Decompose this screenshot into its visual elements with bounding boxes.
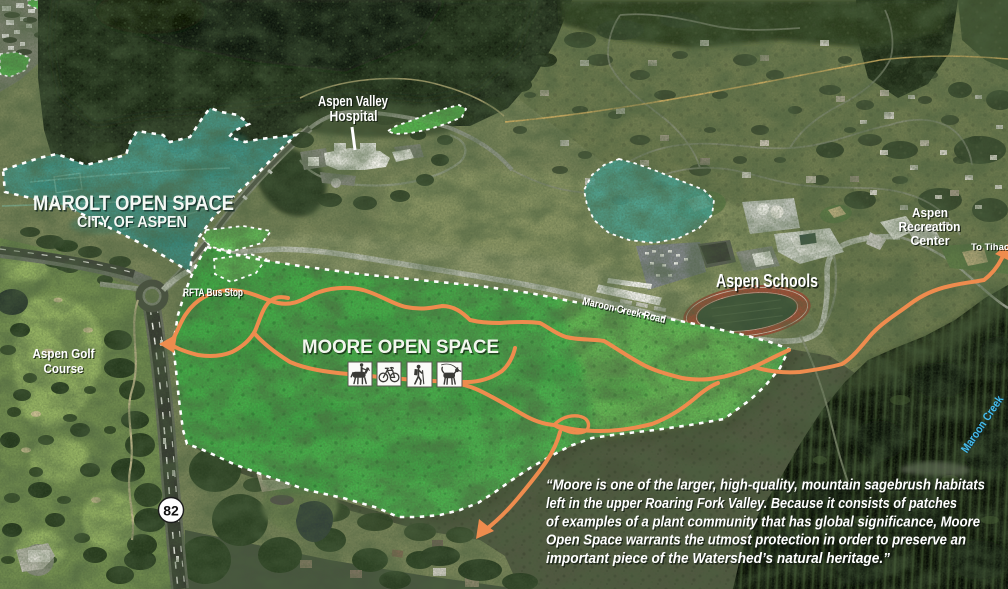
svg-text:MOORE OPEN SPACE: MOORE OPEN SPACE: [302, 336, 499, 358]
svg-text:Aspen: Aspen: [912, 205, 948, 220]
svg-text:Aspen Schools: Aspen Schools: [716, 271, 818, 291]
svg-text:Aspen Valley: Aspen Valley: [318, 94, 388, 110]
svg-text:of examples of a plant communi: of examples of a plant community that ha…: [546, 513, 980, 530]
svg-text:Aspen Golf: Aspen Golf: [33, 346, 96, 361]
svg-text:RFTA Bus Stop: RFTA Bus Stop: [183, 287, 243, 299]
svg-text:MAROLT OPEN SPACE: MAROLT OPEN SPACE: [33, 192, 234, 215]
svg-text:CITY OF ASPEN: CITY OF ASPEN: [77, 214, 187, 231]
svg-text:To Tihack: To Tihack: [971, 242, 1008, 253]
svg-text:important piece of the Watersh: important piece of the Watershed’s natur…: [546, 550, 890, 567]
svg-text:82: 82: [163, 503, 179, 519]
svg-text:Open Space warrants the utmost: Open Space warrants the utmost protectio…: [546, 532, 966, 549]
svg-text:left in the upper Roaring Fork: left in the upper Roaring Fork Valley. B…: [546, 495, 957, 512]
svg-text:Course: Course: [44, 361, 84, 376]
svg-text:Recreation: Recreation: [899, 219, 961, 234]
svg-text:“Moore is one of the larger, h: “Moore is one of the larger, high-qualit…: [546, 477, 985, 494]
svg-text:Hospital: Hospital: [330, 109, 378, 125]
svg-text:Center: Center: [911, 233, 950, 248]
